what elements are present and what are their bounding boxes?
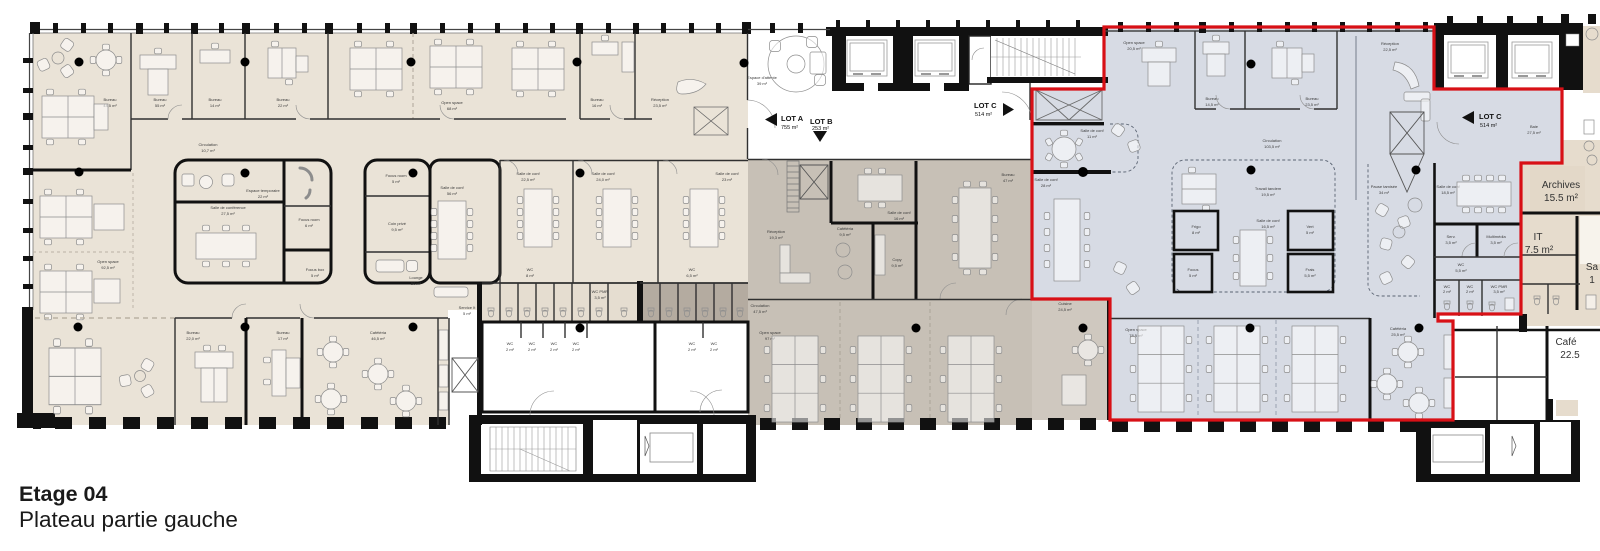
svg-text:39 m²: 39 m² (757, 81, 768, 86)
svg-text:Salle de conf: Salle de conf (1080, 128, 1104, 133)
svg-text:22 m²: 22 m² (258, 194, 269, 199)
svg-text:Open space: Open space (759, 330, 781, 335)
svg-text:2 m²: 2 m² (1443, 289, 1452, 294)
svg-text:Cafétéria: Cafétéria (1390, 326, 1407, 331)
svg-text:8 m²: 8 m² (526, 273, 535, 278)
svg-text:WC: WC (573, 341, 580, 346)
svg-text:19,5 m²: 19,5 m² (1261, 192, 1275, 197)
svg-text:103,5 m²: 103,5 m² (1264, 144, 1280, 149)
svg-text:19,3 m²: 19,3 m² (769, 235, 783, 240)
svg-text:Bureau: Bureau (104, 97, 117, 102)
svg-text:9,5 m²: 9,5 m² (839, 232, 851, 237)
svg-text:Focus: Focus (1188, 267, 1199, 272)
svg-text:Bureau: Bureau (277, 97, 290, 102)
svg-text:11 m²: 11 m² (1087, 134, 1098, 139)
svg-text:Plateau partie gauche: Plateau partie gauche (19, 507, 238, 532)
svg-text:28 m²: 28 m² (1041, 183, 1052, 188)
svg-text:Frigo: Frigo (1191, 224, 1201, 229)
svg-text:Espace d'attente: Espace d'attente (747, 75, 777, 80)
svg-text:27,5 m²: 27,5 m² (221, 211, 235, 216)
svg-text:24,5 m²: 24,5 m² (1058, 307, 1072, 312)
svg-text:Salle de conf: Salle de conf (887, 210, 911, 215)
svg-text:34 m²: 34 m² (1379, 190, 1390, 195)
svg-text:Salle de conf: Salle de conf (440, 185, 464, 190)
svg-text:Pause tamisée: Pause tamisée (1371, 184, 1398, 189)
svg-text:Espace temporaire: Espace temporaire (246, 188, 280, 193)
svg-text:2 m²: 2 m² (572, 347, 581, 352)
svg-text:Focus room: Focus room (298, 217, 320, 222)
svg-text:16 m²: 16 m² (592, 103, 603, 108)
svg-text:2 m²: 2 m² (688, 347, 697, 352)
svg-text:15.5 m²: 15.5 m² (1544, 193, 1579, 204)
svg-text:8 m²: 8 m² (1192, 230, 1201, 235)
svg-text:Bureau: Bureau (1306, 96, 1319, 101)
svg-text:Salle de conf: Salle de conf (1034, 177, 1058, 182)
svg-text:24,0 m²: 24,0 m² (596, 177, 610, 182)
svg-text:Bureau: Bureau (209, 97, 222, 102)
svg-text:5 m²: 5 m² (311, 273, 320, 278)
svg-text:LOT C: LOT C (1479, 112, 1502, 121)
svg-text:IT: IT (1534, 232, 1543, 243)
svg-text:3,5 m²: 3,5 m² (594, 295, 606, 300)
svg-text:Multimédia: Multimédia (1486, 234, 1506, 239)
svg-text:3,5 m²: 3,5 m² (1445, 240, 1457, 245)
svg-text:Cuisine: Cuisine (1058, 301, 1072, 306)
svg-text:WC: WC (689, 341, 696, 346)
svg-text:7.5 m²: 7.5 m² (1525, 245, 1554, 256)
svg-text:55 m²: 55 m² (155, 103, 166, 108)
svg-text:22 m²: 22 m² (278, 103, 289, 108)
svg-text:Cafétéria: Cafétéria (837, 226, 854, 231)
svg-text:1: 1 (1589, 275, 1595, 286)
svg-text:9,5 m²: 9,5 m² (391, 227, 403, 232)
svg-text:47 m²: 47 m² (1003, 178, 1014, 183)
svg-text:18,5 m²: 18,5 m² (1441, 190, 1455, 195)
svg-text:23 m²: 23 m² (722, 177, 733, 182)
svg-text:3,5 m²: 3,5 m² (1493, 289, 1505, 294)
svg-text:27,5 m²: 27,5 m² (1527, 130, 1541, 135)
svg-text:WC: WC (527, 267, 534, 272)
svg-text:22,5 m²: 22,5 m² (1383, 47, 1397, 52)
svg-text:Baie: Baie (1530, 124, 1539, 129)
svg-text:Service It: Service It (459, 305, 477, 310)
svg-text:6,5 m²: 6,5 m² (686, 273, 698, 278)
svg-text:2 m²: 2 m² (506, 347, 515, 352)
svg-text:Circulation: Circulation (199, 142, 218, 147)
svg-text:WC: WC (1458, 262, 1465, 267)
svg-text:9,5 m²: 9,5 m² (891, 263, 903, 268)
svg-text:Salle de conf: Salle de conf (715, 171, 739, 176)
svg-text:47,5 m³: 47,5 m³ (753, 309, 767, 314)
svg-text:Café: Café (1555, 337, 1577, 348)
svg-text:92,5 m²: 92,5 m² (101, 265, 115, 270)
svg-text:Salle de conférence: Salle de conférence (210, 205, 246, 210)
svg-text:2 m²: 2 m² (710, 347, 719, 352)
svg-text:Réception: Réception (767, 229, 785, 234)
svg-text:Frais: Frais (1306, 267, 1315, 272)
svg-text:Open space: Open space (441, 100, 463, 105)
svg-text:17 m²: 17 m² (278, 336, 289, 341)
svg-text:56 m²: 56 m² (447, 191, 458, 196)
svg-text:Lounge: Lounge (409, 275, 423, 280)
svg-text:LOT C: LOT C (974, 101, 997, 110)
svg-text:Vert: Vert (1306, 224, 1314, 229)
svg-text:Réception: Réception (1381, 41, 1399, 46)
svg-text:Salle de conf: Salle de conf (1256, 218, 1280, 223)
svg-text:16 m²: 16 m² (894, 216, 905, 221)
svg-text:22.5: 22.5 (1560, 350, 1580, 361)
svg-text:Travail tandem: Travail tandem (1255, 186, 1282, 191)
svg-text:WC: WC (711, 341, 718, 346)
svg-text:20,5 m²: 20,5 m² (1127, 46, 1141, 51)
svg-text:755 m²: 755 m² (781, 125, 798, 131)
svg-text:5 m²: 5 m² (392, 179, 401, 184)
svg-text:Sa: Sa (1586, 262, 1599, 273)
svg-text:Bureau: Bureau (187, 330, 200, 335)
svg-text:23,5 m²: 23,5 m² (653, 103, 667, 108)
svg-text:Réception: Réception (651, 97, 669, 102)
svg-text:14,5 m²: 14,5 m² (1205, 102, 1219, 107)
svg-text:LOT B: LOT B (810, 117, 833, 126)
svg-text:LOT A: LOT A (781, 114, 804, 123)
svg-text:5 m²: 5 m² (1189, 273, 1198, 278)
svg-text:Salle de conf: Salle de conf (516, 171, 540, 176)
svg-text:50 m²: 50 m² (411, 281, 422, 286)
svg-text:514 m²: 514 m² (975, 112, 992, 118)
svg-text:WC PMR: WC PMR (592, 289, 609, 294)
svg-text:2 m²: 2 m² (1466, 289, 1475, 294)
svg-text:WC: WC (689, 267, 696, 272)
svg-text:5 m²: 5 m² (1306, 230, 1315, 235)
svg-text:Open space: Open space (97, 259, 119, 264)
svg-text:Open space: Open space (1123, 40, 1145, 45)
svg-text:22,0 m²: 22,0 m² (186, 336, 200, 341)
svg-text:5 m²: 5 m² (463, 311, 472, 316)
svg-text:3,5 m²: 3,5 m² (1490, 240, 1502, 245)
svg-text:46,5 m²: 46,5 m² (371, 336, 385, 341)
svg-text:25,5 m²: 25,5 m² (1391, 332, 1405, 337)
svg-text:6 m²: 6 m² (305, 223, 314, 228)
svg-text:Bureau: Bureau (591, 97, 604, 102)
svg-text:Bureau: Bureau (154, 97, 167, 102)
svg-text:WC: WC (529, 341, 536, 346)
svg-text:5,5 m²: 5,5 m² (1304, 273, 1316, 278)
svg-text:Focus box: Focus box (306, 267, 324, 272)
svg-text:Bureau: Bureau (1002, 172, 1015, 177)
svg-text:Bureau: Bureau (277, 330, 290, 335)
svg-text:514 m²: 514 m² (1480, 123, 1497, 129)
svg-text:WC: WC (551, 341, 558, 346)
svg-text:23,5 m²: 23,5 m² (1305, 102, 1319, 107)
svg-text:Etage 04: Etage 04 (19, 482, 107, 506)
svg-text:5,5 m²: 5,5 m² (1455, 268, 1467, 273)
svg-text:2 m²: 2 m² (550, 347, 559, 352)
svg-text:Cafétéria: Cafétéria (370, 330, 387, 335)
svg-text:2 m²: 2 m² (528, 347, 537, 352)
svg-text:14 m²: 14 m² (210, 103, 221, 108)
svg-text:16,5 m²: 16,5 m² (1261, 224, 1275, 229)
svg-text:22,5 m²: 22,5 m² (521, 177, 535, 182)
svg-text:10,7 m³: 10,7 m³ (201, 148, 215, 153)
svg-text:Archives: Archives (1542, 180, 1580, 191)
svg-text:Serv.: Serv. (1446, 234, 1455, 239)
svg-text:Circulation: Circulation (751, 303, 770, 308)
svg-text:Copy: Copy (892, 257, 901, 262)
svg-text:68 m²: 68 m² (447, 106, 458, 111)
svg-text:Focus room: Focus room (385, 173, 407, 178)
svg-text:Salle de conf: Salle de conf (591, 171, 615, 176)
svg-text:WC: WC (507, 341, 514, 346)
svg-text:Coin privé: Coin privé (388, 221, 407, 226)
svg-text:Circulation: Circulation (1263, 138, 1282, 143)
